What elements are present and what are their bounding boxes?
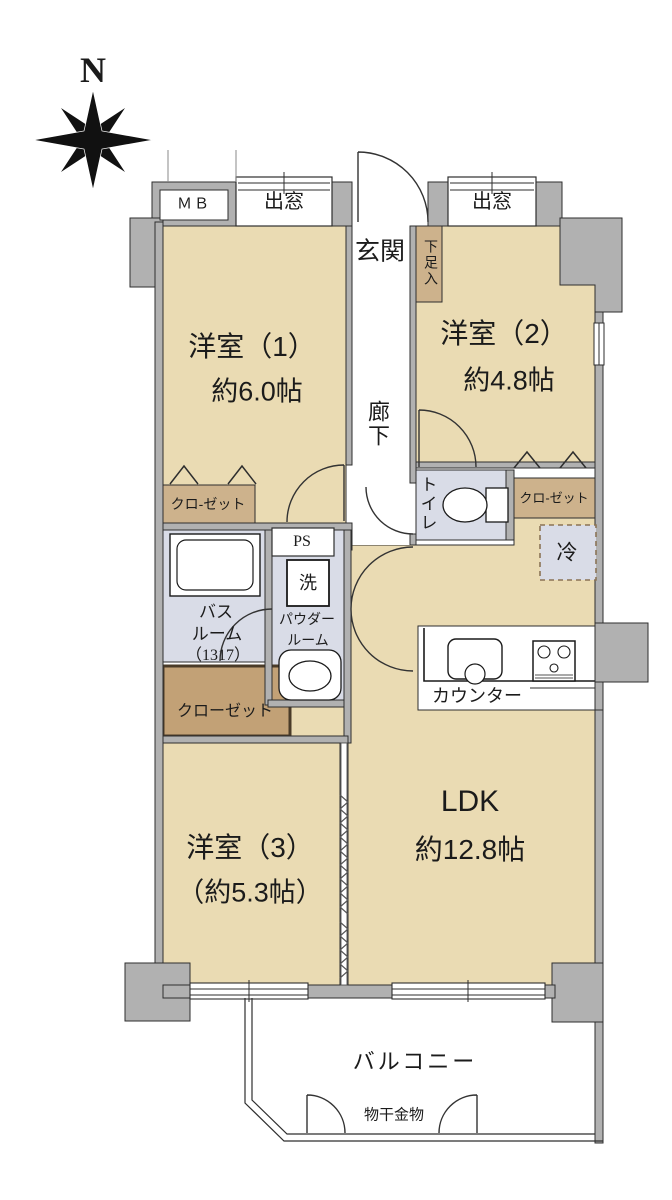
ldk-area-label: 約12.8帖 — [415, 836, 526, 864]
powder-label-line2: ルーム — [287, 635, 329, 649]
compass-north-label: N — [80, 52, 106, 88]
bathroom-label-line1: バス — [199, 604, 233, 621]
wall-top-c — [536, 182, 562, 226]
western2-bottom-wall — [416, 462, 595, 468]
western3-top-wall — [163, 736, 348, 743]
movable-partition — [340, 743, 348, 985]
hallway-left-wall-a — [346, 226, 352, 465]
compass-rose — [33, 90, 153, 190]
wall-right-patch — [595, 682, 603, 710]
western3-area-label: （約5.3帖） — [177, 880, 323, 907]
pillar-bottom-right — [552, 963, 603, 1022]
bathroom-label-line3: （1317） — [186, 648, 250, 664]
floor-plan: N ＭＢ 出窓 出窓 玄関 下足入 洋室（1） 約6.0帖 洋室（2） 約4.8… — [0, 0, 672, 1200]
counter-label: カウンター — [432, 687, 522, 705]
mb-label: ＭＢ — [177, 197, 211, 212]
hallway-right-wall-b — [410, 534, 416, 545]
kitchen-faucet-icon — [465, 664, 485, 684]
wall-bottom-c — [545, 985, 555, 998]
washer-label: 洗 — [299, 574, 317, 592]
western3-name-label: 洋室（3） — [186, 834, 314, 862]
wall-bottom-b — [308, 985, 392, 998]
floor-plan-drawing — [0, 0, 672, 1200]
powder-label-line1: パウダー — [279, 614, 335, 628]
toilet-label: トイレ — [419, 476, 436, 533]
ldk-floor — [348, 518, 595, 985]
western-room-3-floor — [163, 743, 340, 985]
entrance-door — [358, 152, 428, 222]
balcony-door-right — [439, 1095, 477, 1133]
bathtub-outer — [170, 534, 260, 596]
closet-left-label: クロ-ゼット — [171, 497, 246, 511]
balcony-door-left — [307, 1095, 345, 1133]
entrance-label: 玄関 — [355, 240, 405, 265]
bay-window-left-label: 出窓 — [264, 192, 304, 212]
compass-main-star — [33, 90, 153, 190]
western2-area-label: 約4.8帖 — [463, 368, 555, 395]
western1-name-label: 洋室（1） — [188, 333, 316, 361]
hallway-right-wall-a — [410, 226, 416, 483]
bath-powder-wall — [265, 530, 272, 705]
entrance-hallway-floor — [352, 226, 410, 545]
fridge-label: 冷 — [557, 543, 578, 564]
hallway-label: 廊下 — [366, 400, 388, 448]
western1-area-label: 約6.0帖 — [211, 379, 303, 406]
wall-bottom-a — [163, 985, 190, 998]
laundry-hardware-label: 物干金物 — [364, 1109, 424, 1124]
pillar-kitchen — [595, 623, 648, 682]
balcony-label: バルコニー — [353, 1051, 478, 1073]
shoe-cabinet-label: 下足入 — [422, 239, 436, 287]
closet-right-label: クロ-ゼット — [519, 492, 588, 505]
toilet-bowl — [443, 488, 487, 522]
powder-bottom-wall — [268, 700, 344, 707]
bay-window-right-label: 出窓 — [472, 192, 512, 212]
western-room-1-floor — [163, 226, 346, 523]
bathroom-label-line2: ルーム — [192, 626, 243, 643]
vanity-sink-bowl — [289, 661, 331, 691]
wall-right-a — [595, 312, 603, 323]
toilet-tank — [486, 488, 508, 522]
ldk-name-label: LDK — [441, 787, 499, 817]
ps-label: PS — [293, 534, 311, 550]
closet-bottom-label: クローゼット — [177, 704, 273, 720]
wall-left — [155, 222, 163, 988]
ldk-left-wall — [344, 530, 351, 743]
western2-name-label: 洋室（2） — [440, 320, 568, 348]
balcony-right-wall — [595, 1022, 603, 1143]
